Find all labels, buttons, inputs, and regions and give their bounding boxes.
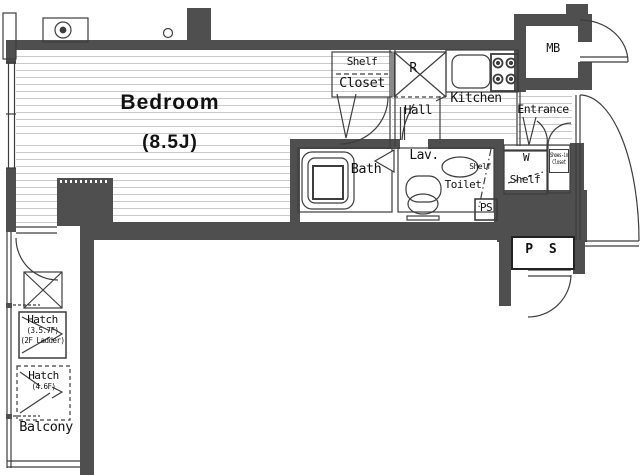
hall-label: Hall xyxy=(396,103,440,116)
shoes-closet-line1: Shoes-in xyxy=(550,152,568,159)
closet-folding-door xyxy=(337,94,356,138)
pipe-space-label: P S xyxy=(511,243,575,257)
floor-plan: P S Bedroom (8.5J) Shelf Closet R Kitche… xyxy=(0,0,640,475)
roof-fixture xyxy=(3,13,173,59)
walls xyxy=(6,4,592,475)
washer-door-fold xyxy=(523,117,536,145)
bedroom-label: Bedroom xyxy=(55,92,285,114)
kitchen-counter xyxy=(446,50,518,92)
lavatory-label: Lav. xyxy=(402,149,446,163)
entrance-step xyxy=(517,90,520,146)
refrigerator-label: R xyxy=(396,62,430,76)
pipe-space-door xyxy=(528,270,571,317)
bedroom-window xyxy=(6,62,16,168)
entrance-label: Entrance xyxy=(512,103,574,115)
hatch-upper-floors: (3.5.7F) xyxy=(20,327,65,335)
kitchen-sink xyxy=(452,55,490,88)
kitchen-label: Kitchen xyxy=(436,92,516,106)
pillar xyxy=(57,178,113,226)
toilet-ps-label: PS xyxy=(475,202,497,214)
shoes-closet-label: Shoes-in Closet xyxy=(547,152,570,166)
kitchen-stove xyxy=(491,54,518,91)
hatch-lower-floors: (4.6F) xyxy=(19,383,68,391)
balcony-label: Balcony xyxy=(14,420,78,434)
shoes-closet-line2: Closet xyxy=(552,159,565,166)
toilet-shelf-label: Shelf xyxy=(464,163,496,171)
bath-label: Bath xyxy=(342,162,390,176)
toilet-label: Toilet xyxy=(442,179,484,191)
hatch-upper-title: Hatch xyxy=(20,314,65,326)
bedroom-size-label: (8.5J) xyxy=(55,133,285,153)
shelf-closet-label: Closet xyxy=(333,76,391,90)
closet-door-arc xyxy=(340,97,388,144)
shelf-closet-shelf-label: Shelf xyxy=(336,56,388,68)
bath-room xyxy=(298,148,394,212)
pillar-hatch-dots xyxy=(60,180,110,183)
washer-label: W xyxy=(512,152,540,164)
meter-box-label: MB xyxy=(530,42,576,55)
party-wall-stub xyxy=(187,8,211,42)
washer-door-arc xyxy=(537,121,547,145)
shoes-closet-door-arc xyxy=(548,123,571,146)
hatch-upper-note: (2F Ladder) xyxy=(19,337,66,345)
toilet-fixture xyxy=(406,176,441,220)
washer-shelf-label: Shelf xyxy=(505,174,545,186)
hatch-lower-title: Hatch xyxy=(19,370,68,382)
